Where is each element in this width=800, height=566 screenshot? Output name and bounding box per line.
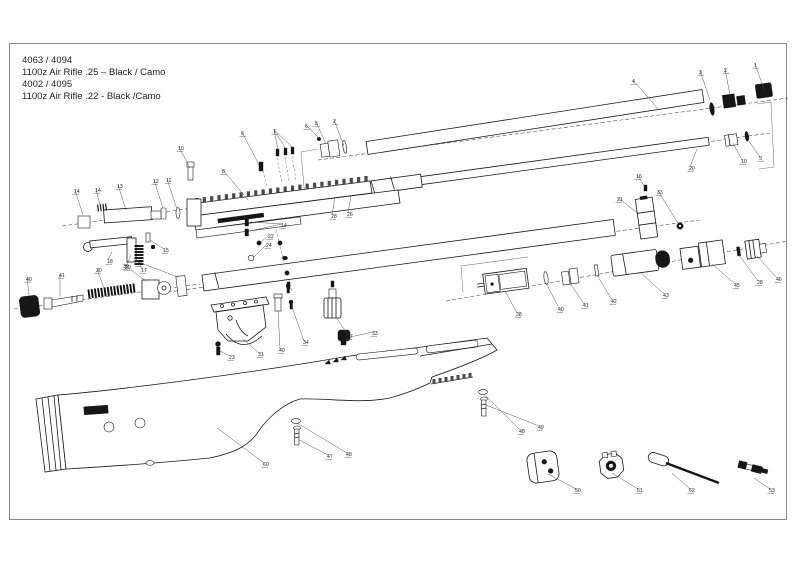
detent-ball	[151, 245, 155, 249]
grip-checkering	[84, 405, 108, 415]
gauge-oring	[543, 271, 549, 284]
part-label-7: 7	[273, 129, 276, 135]
hammer-assembly	[78, 199, 201, 228]
part-label-33: 33	[137, 261, 143, 267]
stock-hole-rear	[104, 422, 114, 432]
part-label-41: 41	[59, 273, 65, 279]
guide-wheel	[158, 282, 171, 295]
parts-diagram-page: 4063 / 4094 1100z Air Rifle .25 – Black …	[0, 0, 800, 566]
probe-ring	[248, 255, 254, 261]
guide-plate	[176, 275, 187, 296]
muzzle-screw	[317, 137, 321, 141]
detent-pin	[146, 233, 150, 242]
part-label-33: 33	[657, 190, 663, 196]
bolt-shaft	[52, 295, 83, 307]
part-label-6: 6	[241, 131, 244, 137]
model-number-1: 4063 / 4094	[22, 55, 72, 66]
part-label-20: 20	[689, 166, 695, 172]
air-tube	[202, 219, 615, 290]
part-label-48: 48	[519, 429, 525, 435]
part-label-28: 28	[757, 280, 763, 286]
model-name-2: 1100z Air Rifle .22 - Black /Camo	[22, 91, 161, 102]
spring-guide-block	[142, 280, 159, 299]
magazine	[635, 195, 658, 239]
hammer	[104, 207, 153, 223]
hammer-pin	[161, 208, 166, 219]
cocking-assembly	[19, 275, 187, 318]
part-label-12: 12	[153, 179, 159, 185]
part-label-16: 16	[636, 174, 642, 180]
accessory-nut	[598, 450, 624, 479]
part-label-23: 23	[229, 355, 235, 361]
valve-pin	[594, 265, 599, 276]
bolt-head	[44, 298, 52, 309]
part-label-32: 32	[123, 264, 129, 270]
part-label-40: 40	[279, 348, 285, 354]
stock-washer-rear	[292, 419, 301, 424]
part-label-26: 26	[347, 212, 353, 218]
main-spring	[88, 284, 134, 299]
index-pin	[245, 219, 249, 226]
barrel-oring	[744, 131, 749, 141]
cocking-knob	[324, 281, 341, 318]
part-label-43: 43	[663, 293, 669, 299]
fill-probe	[738, 461, 769, 476]
adjuster-screw	[275, 298, 281, 311]
valve-body	[611, 248, 671, 277]
part-label-33: 33	[372, 331, 378, 337]
part-label-47: 47	[327, 454, 333, 460]
part-label-3: 3	[699, 70, 702, 76]
stock-hole-front	[135, 418, 145, 428]
part-label-6: 6	[305, 124, 308, 130]
bolt-handle-arm	[90, 237, 133, 248]
fill-valve	[680, 240, 726, 270]
part-label-13: 13	[117, 184, 123, 190]
part-label-42: 42	[611, 299, 617, 305]
valve-pin-small	[736, 247, 740, 256]
centerlines	[14, 98, 788, 309]
shroud-assembly	[317, 83, 774, 159]
sling-stud	[146, 461, 154, 466]
trigger-assembly	[211, 281, 350, 355]
part-label-10: 10	[741, 159, 747, 165]
part-label-18: 18	[107, 259, 113, 265]
part-label-45: 45	[734, 283, 740, 289]
model-name-1: 1100z Air Rifle .25 – Black / Camo	[22, 67, 165, 78]
stock-body	[58, 338, 497, 469]
stock	[36, 338, 497, 472]
fill-cap	[745, 238, 767, 259]
exploded-diagram: 4063 / 4094 1100z Air Rifle .25 – Black …	[0, 0, 800, 566]
model-number-2: 4002 / 4095	[22, 79, 72, 90]
part-label-38: 38	[516, 312, 522, 318]
muzzle-washer	[709, 102, 715, 115]
part-label-52: 52	[689, 488, 695, 494]
part-label-24: 24	[266, 243, 272, 249]
part-label-11: 11	[166, 178, 171, 184]
part-label-10: 10	[178, 146, 184, 152]
part-label-31: 31	[258, 352, 264, 358]
bolt-handle-assembly	[84, 233, 156, 264]
stock-washer-front	[479, 390, 488, 395]
part-label-8: 8	[222, 169, 225, 175]
part-label-9: 9	[759, 156, 762, 162]
part-label-28: 28	[331, 214, 337, 220]
part-label-40: 40	[558, 307, 564, 313]
part-label-21: 21	[617, 197, 623, 203]
hammer-washer	[176, 208, 180, 219]
part-label-14: 14	[95, 188, 101, 194]
part-label-46: 46	[776, 277, 782, 283]
part-label-17: 17	[141, 268, 147, 274]
end-cap	[19, 295, 40, 318]
muzzle-adapter	[320, 139, 348, 158]
part-label-30: 30	[96, 268, 102, 274]
part-label-5: 5	[315, 121, 318, 127]
accessory-block	[526, 450, 560, 484]
muzzle-cap	[755, 83, 773, 99]
part-label-40: 40	[26, 277, 32, 283]
part-label-14: 14	[281, 223, 287, 229]
rail-bolt	[188, 166, 193, 180]
receiver-rail	[187, 147, 400, 238]
muzzle-cap-set	[707, 83, 774, 116]
part-label-4: 4	[632, 79, 635, 85]
part-label-2: 2	[724, 68, 727, 74]
part-label-48: 48	[346, 452, 352, 458]
part-label-50: 50	[575, 488, 581, 494]
part-label-60: 60	[263, 462, 269, 468]
part-label-53: 53	[769, 488, 775, 494]
cleaning-rod	[647, 451, 719, 483]
muzzle-nut	[722, 94, 736, 109]
adjuster-head	[274, 294, 282, 298]
part-label-14: 14	[74, 189, 80, 195]
part-label-15: 15	[163, 248, 169, 254]
title-block: 4063 / 4094 1100z Air Rifle .25 – Black …	[22, 55, 165, 102]
accessories	[526, 450, 768, 484]
part-label-51: 51	[637, 488, 643, 494]
rail-screw-front	[259, 162, 263, 171]
part-label-22: 22	[268, 234, 274, 240]
barrel-bushing	[725, 134, 738, 147]
rear-plug	[187, 199, 201, 226]
part-label-2: 2	[333, 119, 336, 125]
part-label-41: 41	[583, 303, 589, 309]
hammer-cap	[78, 216, 90, 228]
hammer-nose	[151, 211, 161, 219]
trigger-screw	[216, 342, 221, 347]
part-label-37: 37	[347, 334, 353, 340]
valve-bushing	[561, 268, 579, 285]
pressure-gauge-block	[476, 268, 529, 295]
part-label-49: 49	[538, 425, 544, 431]
probe-screw	[257, 241, 261, 245]
part-label-34: 34	[303, 340, 309, 346]
part-label-1: 1	[754, 63, 757, 69]
